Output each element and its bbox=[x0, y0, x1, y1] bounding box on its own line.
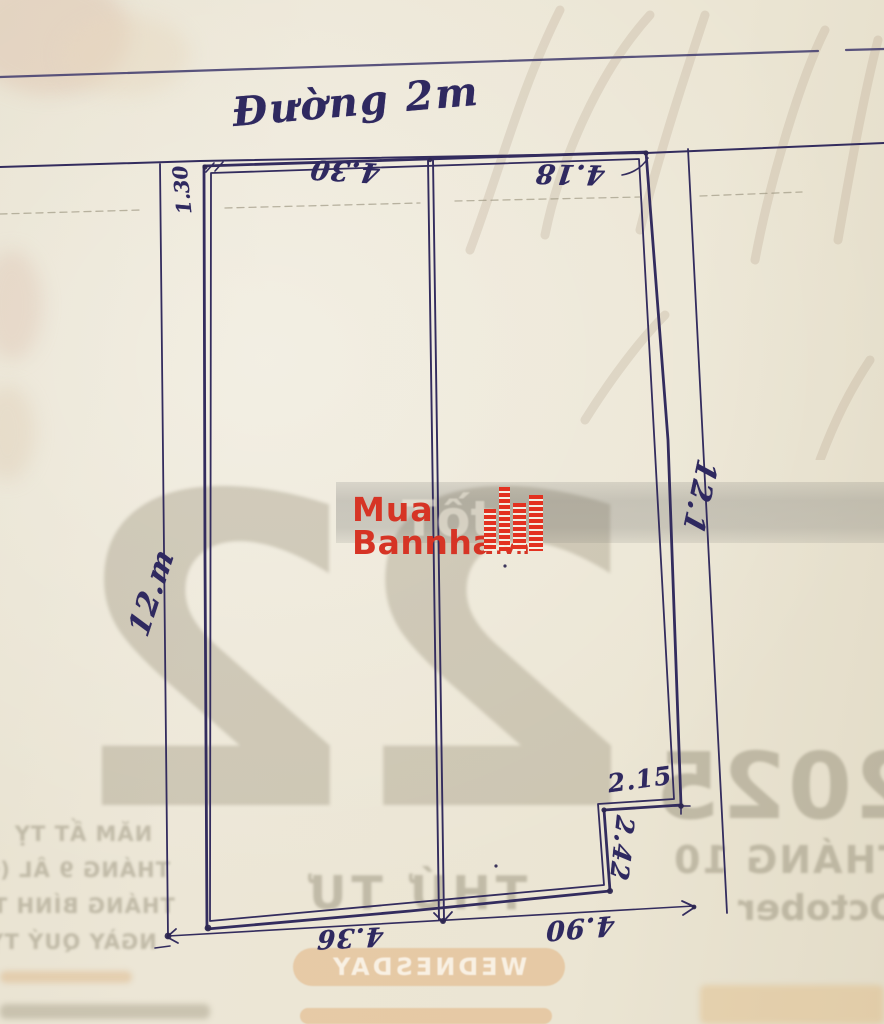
building-block bbox=[499, 487, 510, 551]
buildings-icon bbox=[484, 487, 543, 551]
building-block bbox=[513, 503, 526, 551]
dim-top-right: 4.18 bbox=[498, 157, 642, 190]
dim-top-left: 4.30 bbox=[288, 152, 403, 189]
photo-of-hand-drawn-land-sketch: 22 2025 THÁNG 10 October THỨ TƯ WEDNESDA… bbox=[0, 0, 884, 1024]
dim-bottom-left: 4.36 bbox=[299, 919, 400, 954]
building-block bbox=[484, 509, 496, 551]
logo-line2: Bannha bbox=[352, 526, 495, 559]
building-block bbox=[529, 495, 543, 551]
